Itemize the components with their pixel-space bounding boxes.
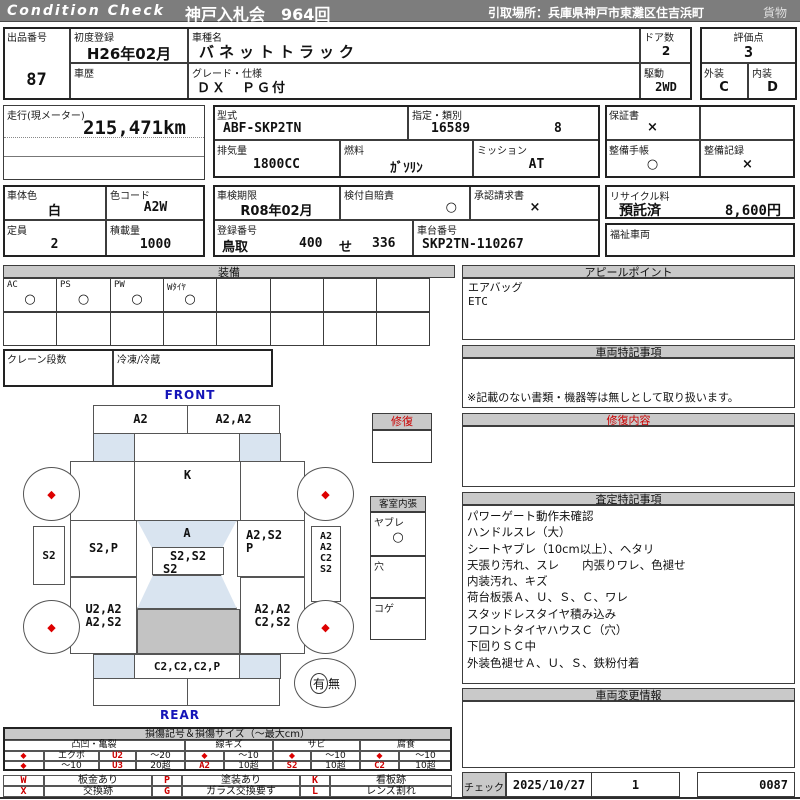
brand-logo: Condition Check — [7, 3, 165, 19]
mark-p-text-cell: 塗装あり — [182, 775, 300, 786]
equip-row2-cell-6 — [270, 312, 324, 346]
assessment-line-6: 荷台板張Ａ、Ｕ、Ｓ、Ｃ、ワレ — [467, 589, 790, 605]
equip-value-ps: ○ — [57, 292, 110, 307]
equip-row2-cell-1 — [3, 312, 57, 346]
equip-label-ac: AC — [7, 280, 18, 290]
legend-dent-size-0-label: 〜10 — [61, 762, 81, 771]
check-code-value: 0087 — [759, 778, 788, 792]
warranty-empty-cell — [700, 105, 795, 140]
warranty-cell: 保証書 × — [605, 105, 700, 140]
assessment-header: 査定特記事項 — [462, 492, 795, 505]
lot-number-cell: 出品番号 87 — [3, 27, 70, 100]
load-capacity-cell: 積載量 1000 — [106, 220, 205, 257]
top-bar: Condition Check 神戸入札会 964回 引取場所：兵庫県神戸市東灘… — [0, 0, 800, 22]
auction-title: 神戸入札会 964回 — [185, 1, 330, 25]
equip-cell-wtire: Wﾀｲﾔ ○ — [163, 278, 217, 312]
fuel-value: ｶﾞｿﾘﾝ — [341, 157, 472, 176]
legend-scratch-size-1-label: 〜10 — [238, 752, 258, 761]
panel-side-gate-left: S2 — [33, 526, 65, 585]
mark-w-code: W — [20, 776, 26, 785]
legend-scratch-code: A2 — [185, 761, 224, 771]
cabin-interior-header: 客室内張 — [370, 496, 426, 512]
inspection-expiry-value: R08年02月 — [214, 200, 339, 219]
class-value-1: 16589 — [431, 121, 470, 136]
assessment-line-2: ハンドルスレ（大） — [467, 524, 790, 540]
color-code-cell: 色コード A2W — [106, 185, 205, 220]
model-code-cell: 型式 ABF-SKP2TN — [213, 105, 408, 140]
spare-tire-no: 無 — [328, 675, 340, 692]
panel-side-gate-right-line2: A2 — [312, 542, 340, 553]
displacement-cell: 排気量 1800CC — [213, 140, 340, 178]
panel-side-gate-right-line1: A2 — [312, 531, 340, 542]
panel-roof: K — [134, 461, 241, 521]
assessment-line-10: 外装色褪せＡ、Ｕ、Ｓ、鉄粉付着 — [467, 655, 790, 671]
capacity-label: 定員 — [7, 222, 27, 237]
cabin-tear-label: ヤブレ — [374, 514, 404, 529]
crane-cell: クレーン段数 — [3, 349, 113, 387]
legend-group-rust-label: サビ — [307, 741, 325, 750]
page-bottom-border — [0, 797, 800, 799]
wheel-front-left-mark: ◆ — [47, 489, 55, 500]
panel-headlight-left — [93, 433, 135, 462]
panel-windshield-code: A — [183, 527, 190, 540]
score-cell: 評価点 3 — [700, 27, 797, 63]
crane-label: クレーン段数 — [7, 351, 67, 366]
exterior-grade-value: C — [701, 80, 747, 95]
mark-p-code: P — [164, 776, 170, 785]
cabin-interior-title: 客室内張 — [379, 499, 417, 510]
reefer-cell: 冷凍/冷蔵 — [113, 349, 273, 387]
vehicle-change-header: 車両変更情報 — [462, 688, 795, 701]
panel-side-gate-right: A2 A2 C2 S2 — [311, 526, 341, 602]
lot-number-label: 出品番号 — [7, 29, 47, 44]
equip-cell-ps: PS ○ — [56, 278, 111, 312]
model-code-label: 型式 — [217, 107, 237, 122]
panel-rear-window — [137, 575, 237, 609]
panel-door-left-code: S2,P — [89, 542, 118, 555]
panel-side-gate-left-code: S2 — [42, 549, 55, 562]
mark-w-text-cell: 板金あり — [44, 775, 152, 786]
legend-corr-size-2-label: 10超 — [415, 762, 435, 771]
legend-rust-size-1-label: 〜10 — [325, 752, 345, 761]
first-registration-cell: 初度登録 H26年02月 — [70, 27, 188, 63]
load-capacity-label: 積載量 — [110, 222, 140, 237]
transmission-label: ミッション — [477, 142, 527, 157]
panel-bed-side-left-line1: U2,A2 — [85, 603, 121, 616]
assessment-body: パワーゲート動作未確認 ハンドルスレ（大） シートヤブレ（10cm以上）、ヘタリ… — [462, 505, 795, 684]
legend-dent-name: エクボ — [44, 751, 99, 761]
grade-cell: グレード・仕様 ＤＸ ＰＧ付 — [188, 63, 640, 100]
assessment-line-4: 天張り汚れ、スレ 内張りワレ、色褪せ — [467, 557, 790, 573]
equip-cell-pw: PW ○ — [110, 278, 164, 312]
dent-diamond-icon-1: ◆ — [20, 752, 26, 760]
mark-w-cell: W — [3, 775, 44, 786]
equip-label-ps: PS — [60, 280, 71, 290]
equip-cell-ac: AC ○ — [3, 278, 57, 312]
panel-rear-gate-code: C2,C2,C2,P — [154, 660, 220, 673]
chassis-number-label: 車台番号 — [417, 222, 457, 237]
legend-rust-code: S2 — [273, 761, 311, 771]
legend-group-dent: 凸凹・亀裂 — [3, 740, 185, 751]
panel-bed-side-left-line2: A2,S2 — [85, 616, 121, 629]
equip-row2-cell-7 — [323, 312, 377, 346]
mark-k-text-cell: 看板跡 — [330, 775, 452, 786]
repair-flag-title: 修復 — [391, 415, 413, 428]
lot-number-value: 87 — [4, 70, 69, 90]
panel-taillight-right — [239, 654, 281, 679]
legend-dent-size-2-label: 20超 — [150, 762, 170, 771]
registration-class: 400 — [299, 236, 322, 251]
appeal-item-1: エアバッグ — [468, 281, 789, 295]
panel-headlight-right — [239, 433, 281, 462]
pickup-location: 引取場所：兵庫県神戸市東灘区住吉浜町 — [488, 4, 704, 21]
check-date-value: 2025/10/27 — [507, 778, 591, 792]
legend-rust-diamond: ◆ — [273, 751, 311, 761]
legend-title-bar: 損傷記号＆損傷サイズ（〜最大cm） — [3, 727, 452, 740]
wheel-rear-left: ◆ — [23, 600, 80, 654]
mark-l-text-cell: レンズ割れ — [330, 786, 452, 797]
panel-cab-back-line2: S2 — [153, 563, 223, 576]
history-label: 車歴 — [74, 65, 94, 80]
assessment-line-9: 下回りＳＣ中 — [467, 638, 790, 654]
panel-bed-side-right: A2,A2 C2,S2 — [240, 577, 305, 654]
wheel-front-right: ◆ — [297, 467, 354, 521]
fuel-label: 燃料 — [344, 142, 364, 157]
vehicle-category: 貨物 — [763, 4, 787, 21]
check-count-value: 1 — [592, 778, 679, 792]
legend-corr-size-1-label: 〜10 — [415, 752, 435, 761]
cabin-burn-cell: コゲ — [370, 598, 426, 640]
vehicle-notes-footer: ※記載のない書類・機器等は無しとして取り扱います。 — [467, 389, 739, 405]
legend-group-corrosion-label: 腐食 — [397, 741, 415, 750]
legend-title: 損傷記号＆損傷サイズ（〜最大cm） — [145, 729, 310, 740]
recycle-fee-value: 8,600円 — [725, 200, 781, 220]
odometer-divider-solid — [4, 156, 204, 157]
score-value: 3 — [701, 43, 796, 61]
maintenance-record-value: × — [701, 157, 794, 172]
class-label: 指定・類別 — [412, 107, 462, 122]
exterior-grade-label: 外装 — [704, 65, 724, 80]
check-date-cell: 2025/10/27 — [506, 772, 592, 797]
approval-request-cell: 承認請求書 × — [470, 185, 600, 220]
legend-corr-code: C2 — [360, 761, 399, 771]
registration-serial: 336 — [372, 236, 395, 251]
legend-group-rust: サビ — [273, 740, 360, 751]
legend-dent-diamond-1: ◆ — [3, 751, 44, 761]
doors-cell: ドア数 2 — [640, 27, 692, 63]
body-color-cell: 車体色 白 — [3, 185, 106, 220]
mark-k-cell: K — [300, 775, 330, 786]
odometer-value: 215,471km — [83, 117, 186, 139]
interior-grade-value: D — [749, 80, 796, 95]
panel-front-bumper-left: A2 — [93, 405, 188, 434]
mark-l-cell: L — [300, 786, 330, 797]
wheel-front-right-mark: ◆ — [321, 489, 329, 500]
scratch-diamond-icon: ◆ — [201, 752, 207, 760]
class-cell: 指定・類別 16589 8 — [408, 105, 600, 140]
odometer-cell: 走行(現メーター) 215,471km — [3, 105, 205, 180]
doors-label: ドア数 — [644, 29, 674, 44]
panel-rear-bumper-right — [187, 678, 280, 706]
repair-flag-header: 修復 — [372, 413, 432, 430]
mark-p-cell: P — [152, 775, 182, 786]
equip-value-wtire: ○ — [164, 292, 216, 307]
legend-group-scratch-label: 線キズ — [215, 741, 242, 750]
legend-dent-size-1: 〜20 — [136, 751, 185, 761]
check-label-cell: チェック — [462, 772, 506, 797]
legend-dent-name-label: エクボ — [58, 752, 85, 761]
wheel-rear-right: ◆ — [297, 600, 354, 654]
grade-value: ＤＸ ＰＧ付 — [197, 77, 287, 96]
legend-dent-diamond-2: ◆ — [3, 761, 44, 771]
fuel-cell: 燃料 ｶﾞｿﾘﾝ — [340, 140, 473, 178]
transmission-cell: ミッション AT — [473, 140, 600, 178]
legend-rust-code-label: S2 — [287, 762, 298, 771]
legend-corr-size-1: 〜10 — [399, 751, 452, 761]
color-code-value: A2W — [107, 200, 204, 215]
welfare-vehicle-cell: 福祉車両 — [605, 223, 795, 257]
equip-value-pw: ○ — [111, 292, 163, 307]
maintenance-record-label: 整備記録 — [704, 142, 744, 157]
legend-group-scratch: 線キズ — [185, 740, 273, 751]
panel-front-bumper-right: A2,A2 — [187, 405, 280, 434]
insurance-value: ○ — [446, 200, 457, 215]
legend-rust-size-2-label: 10超 — [325, 762, 345, 771]
drive-value: 2WD — [641, 80, 691, 94]
panel-cab-back: S2,S2 S2 — [152, 547, 224, 575]
equip-cell-empty-3 — [323, 278, 377, 312]
registration-number-cell: 登録番号 鳥取 400 せ 336 — [213, 220, 413, 257]
maintenance-book-label: 整備手帳 — [609, 142, 649, 157]
mark-x-cell: X — [3, 786, 44, 797]
legend-corr-diamond: ◆ — [360, 751, 399, 761]
panel-bed-side-right-line1: A2,A2 — [254, 603, 290, 616]
model-name-cell: 車種名 バネットトラック — [188, 27, 640, 63]
panel-side-gate-right-line4: S2 — [312, 564, 340, 575]
dent-diamond-icon-2: ◆ — [20, 762, 26, 770]
score-label: 評価点 — [701, 29, 796, 44]
vehicle-notes-body: ※記載のない書類・機器等は無しとして取り扱います。 — [462, 358, 795, 408]
legend-dent-size-1-label: 〜20 — [150, 752, 170, 761]
wheel-front-left: ◆ — [23, 467, 80, 521]
legend-dent-code-u2-label: U2 — [112, 752, 123, 761]
wheel-rear-left-mark: ◆ — [47, 622, 55, 633]
equip-row2-cell-2 — [56, 312, 111, 346]
body-color-value: 白 — [4, 200, 105, 219]
legend-group-dent-label: 凸凹・亀裂 — [71, 741, 116, 750]
legend-scratch-size-2: 10超 — [224, 761, 273, 771]
capacity-cell: 定員 2 — [3, 220, 106, 257]
panel-rear-gate: C2,C2,C2,P — [134, 654, 240, 679]
registration-number-label: 登録番号 — [217, 222, 257, 237]
assessment-line-5: 内装汚れ、キズ — [467, 573, 790, 589]
maintenance-book-cell: 整備手帳 ○ — [605, 140, 700, 178]
panel-taillight-left — [93, 654, 135, 679]
legend-dent-size-2: 20超 — [136, 761, 185, 771]
panel-front-bumper-left-code: A2 — [133, 413, 147, 426]
legend-scratch-diamond: ◆ — [185, 751, 224, 761]
mark-p-text: 塗装あり — [221, 776, 261, 785]
panel-front-bumper-right-code: A2,A2 — [215, 413, 251, 426]
mark-g-text-cell: ガラス交換要す — [182, 786, 300, 797]
panel-door-left: S2,P — [70, 520, 137, 577]
legend-scratch-size-2-label: 10超 — [238, 762, 258, 771]
mark-l-code: L — [312, 787, 318, 796]
load-capacity-value: 1000 — [107, 237, 204, 252]
mark-k-code: K — [312, 776, 318, 785]
maintenance-book-value: ○ — [606, 157, 699, 172]
panel-door-right-line2: P — [246, 542, 253, 555]
cabin-burn-label: コゲ — [374, 600, 394, 615]
legend-rust-size-2: 10超 — [311, 761, 360, 771]
repair-flag-body — [372, 430, 432, 463]
odometer-label: 走行(現メーター) — [7, 107, 85, 122]
first-registration-label: 初度登録 — [74, 29, 114, 44]
cabin-hole-label: 穴 — [374, 558, 384, 573]
chassis-number-value: SKP2TN-110267 — [422, 237, 524, 252]
class-value-2: 8 — [554, 121, 562, 136]
warranty-value: × — [606, 120, 699, 135]
diagram-front-label: FRONT — [150, 388, 230, 402]
equip-cell-empty-4 — [376, 278, 430, 312]
mark-x-text-cell: 交換跡 — [44, 786, 152, 797]
doors-value: 2 — [641, 44, 691, 58]
equipment-header: 装備 — [3, 265, 455, 278]
rust-diamond-icon: ◆ — [289, 752, 295, 760]
appeal-item-2: ETC — [468, 295, 789, 309]
model-name-value: バネットトラック — [199, 41, 359, 62]
interior-grade-cell: 内装 D — [748, 63, 797, 100]
panel-cargo-bed — [137, 609, 240, 654]
panel-side-gate-right-line3: C2 — [312, 553, 340, 564]
drive-cell: 駆動 2WD — [640, 63, 692, 100]
displacement-value: 1800CC — [214, 157, 339, 172]
mark-x-code: X — [20, 787, 26, 796]
mark-g-code: G — [164, 787, 170, 796]
drive-label: 駆動 — [644, 65, 664, 80]
wheel-rear-right-mark: ◆ — [321, 622, 329, 633]
transmission-value: AT — [474, 157, 599, 172]
diagram-rear-label: REAR — [140, 708, 220, 722]
spare-tire-yes: 有 — [310, 673, 328, 694]
equip-label-pw: PW — [114, 280, 125, 290]
model-code-value: ABF-SKP2TN — [223, 121, 301, 136]
interior-grade-label: 内装 — [752, 65, 772, 80]
reefer-label: 冷凍/冷蔵 — [117, 351, 160, 366]
vehicle-change-body — [462, 701, 795, 768]
legend-dent-code-u3: U3 — [99, 761, 136, 771]
odometer-divider-dotted — [4, 137, 204, 138]
assessment-line-8: フロントタイヤハウスＣ（穴） — [467, 622, 790, 638]
legend-group-corrosion: 腐食 — [360, 740, 452, 751]
exterior-grade-cell: 外装 C — [700, 63, 748, 100]
legend-corr-size-2: 10超 — [399, 761, 452, 771]
insurance-label: 検付自賠責 — [344, 187, 394, 202]
legend-dent-code-u2: U2 — [99, 751, 136, 761]
equip-value-ac: ○ — [4, 292, 56, 307]
repair-content-header: 修復内容 — [462, 413, 795, 426]
appeal-body: エアバッグ ETC — [462, 278, 795, 340]
mark-g-cell: G — [152, 786, 182, 797]
registration-kana: せ — [339, 236, 352, 255]
equip-row2-cell-8 — [376, 312, 430, 346]
panel-door-right: A2,S2 P — [237, 520, 305, 577]
mark-x-text: 交換跡 — [83, 787, 113, 796]
mark-k-text: 看板跡 — [376, 776, 406, 785]
assessment-line-7: スタッドレスタイヤ積み込み — [467, 606, 790, 622]
equip-row2-cell-3 — [110, 312, 164, 346]
displacement-label: 排気量 — [217, 142, 247, 157]
recycle-fee-cell: リサイクル料 預託済 8,600円 — [605, 185, 795, 219]
registration-area: 鳥取 — [222, 236, 248, 255]
equip-cell-empty-1 — [216, 278, 271, 312]
vehicle-notes-header: 車両特記事項 — [462, 345, 795, 358]
cabin-hole-cell: 穴 — [370, 556, 426, 598]
maintenance-record-cell: 整備記録 × — [700, 140, 795, 178]
insurance-cell: 検付自賠責 ○ — [340, 185, 470, 220]
repair-content-body — [462, 426, 795, 487]
assessment-line-3: シートヤブレ（10cm以上）、ヘタリ — [467, 541, 790, 557]
legend-rust-size-1: 〜10 — [311, 751, 360, 761]
cabin-tear-value: ○ — [371, 530, 425, 545]
capacity-value: 2 — [4, 237, 105, 252]
inspection-expiry-cell: 車検期限 R08年02月 — [213, 185, 340, 220]
approval-request-value: × — [471, 200, 599, 215]
mark-g-text: ガラス交換要す — [206, 787, 276, 796]
equip-row2-cell-4 — [163, 312, 217, 346]
panel-roof-code: K — [184, 469, 191, 482]
spare-tire-indicator: 有 無 — [294, 658, 356, 708]
panel-cab-right — [240, 461, 305, 521]
mark-w-text: 板金あり — [78, 776, 118, 785]
legend-scratch-size-1: 〜10 — [224, 751, 273, 761]
welfare-vehicle-label: 福祉車両 — [610, 226, 650, 241]
panel-bed-side-right-line2: C2,S2 — [254, 616, 290, 629]
panel-bed-side-left: U2,A2 A2,S2 — [70, 577, 137, 654]
cabin-tear-cell: ヤブレ ○ — [370, 512, 426, 556]
panel-windshield: A — [137, 520, 237, 550]
first-registration-value: H26年02月 — [71, 43, 187, 64]
equip-cell-empty-2 — [270, 278, 324, 312]
check-count-cell: 1 — [591, 772, 680, 797]
history-cell: 車歴 — [70, 63, 188, 100]
recycle-status-value: 預託済 — [619, 200, 661, 220]
legend-dent-size-0: 〜10 — [44, 761, 99, 771]
chassis-number-cell: 車台番号 SKP2TN-110267 — [413, 220, 600, 257]
panel-rear-bumper-left — [93, 678, 188, 706]
legend-dent-code-u3-label: U3 — [112, 762, 123, 771]
assessment-line-1: パワーゲート動作未確認 — [467, 508, 790, 524]
legend-corr-code-label: C2 — [374, 762, 385, 771]
legend-scratch-code-label: A2 — [199, 762, 210, 771]
corr-diamond-icon: ◆ — [376, 752, 382, 760]
mark-l-text: レンズ割れ — [366, 787, 416, 796]
auction-sheet: Condition Check 神戸入札会 964回 引取場所：兵庫県神戸市東灘… — [0, 0, 800, 800]
equip-row2-cell-5 — [216, 312, 271, 346]
appeal-header: アピールポイント — [462, 265, 795, 278]
check-code-cell: 0087 — [697, 772, 795, 797]
check-label: チェック — [463, 779, 505, 794]
